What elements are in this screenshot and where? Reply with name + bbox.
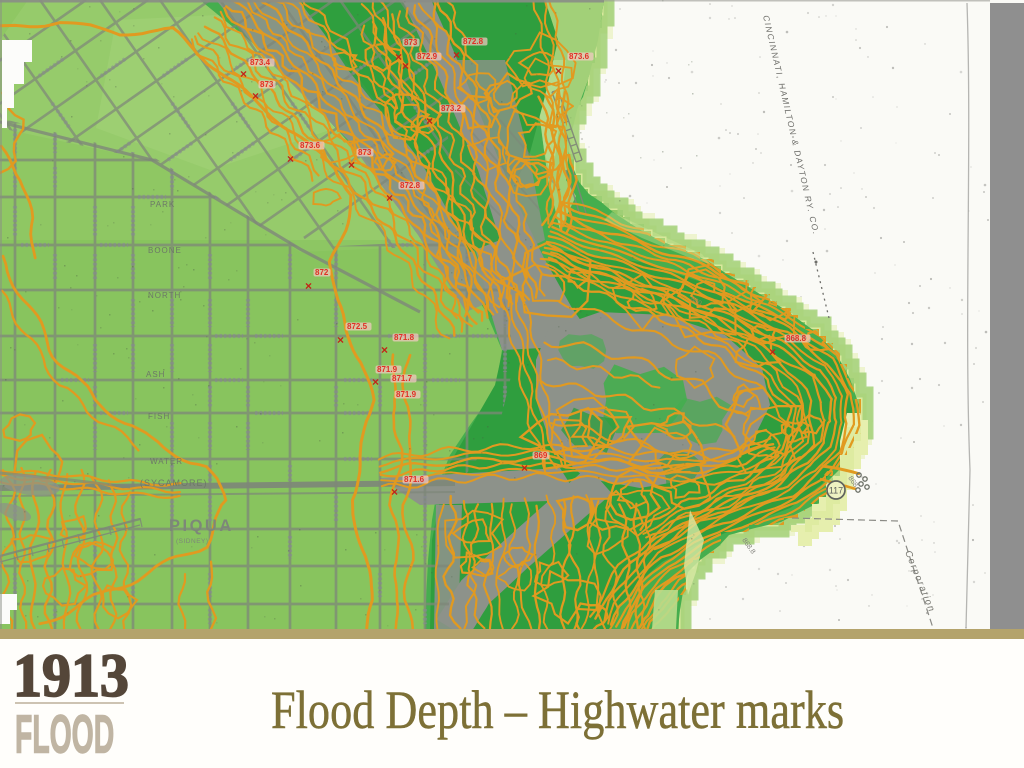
- svg-text:872.5: 872.5: [347, 322, 368, 331]
- svg-text:872: 872: [315, 268, 329, 277]
- svg-text:×: ×: [240, 67, 247, 81]
- svg-text:873.6: 873.6: [300, 141, 321, 150]
- svg-text:(SYCAMORE): (SYCAMORE): [140, 478, 208, 488]
- svg-text:871.8: 871.8: [394, 333, 415, 342]
- svg-text:×: ×: [337, 333, 344, 347]
- svg-text:871.9: 871.9: [377, 365, 398, 374]
- svg-text:WATER: WATER: [150, 457, 183, 466]
- svg-text:×: ×: [386, 191, 393, 205]
- svg-text:873.2: 873.2: [441, 104, 462, 113]
- svg-text:873.4: 873.4: [250, 58, 271, 67]
- svg-text:873: 873: [260, 80, 274, 89]
- svg-text:×: ×: [381, 343, 388, 357]
- svg-text:PARK: PARK: [150, 200, 175, 209]
- svg-text:873: 873: [404, 38, 418, 47]
- svg-text:ASH: ASH: [146, 370, 165, 379]
- svg-text:×: ×: [372, 375, 379, 389]
- svg-text:872.8: 872.8: [463, 37, 484, 46]
- svg-text:873: 873: [358, 148, 372, 157]
- svg-text:×: ×: [391, 485, 398, 499]
- svg-text:×: ×: [305, 279, 312, 293]
- svg-text:117: 117: [829, 486, 843, 496]
- svg-text:NORTH: NORTH: [148, 291, 181, 300]
- svg-text:872.9: 872.9: [417, 52, 438, 61]
- svg-text:871.9: 871.9: [396, 390, 417, 399]
- svg-text:BOONE: BOONE: [148, 246, 182, 255]
- svg-text:×: ×: [453, 48, 460, 62]
- svg-text:×: ×: [402, 59, 409, 73]
- svg-text:×: ×: [769, 345, 776, 359]
- svg-text:(SIDNEY): (SIDNEY): [176, 538, 209, 545]
- svg-text:871.6: 871.6: [404, 475, 425, 484]
- svg-text:PIQUA: PIQUA: [169, 517, 234, 535]
- svg-text:×: ×: [287, 152, 294, 166]
- svg-text:872.8: 872.8: [400, 181, 421, 190]
- svg-text:871.7: 871.7: [392, 374, 413, 383]
- svg-text:×: ×: [252, 89, 259, 103]
- svg-text:873.6: 873.6: [569, 52, 590, 61]
- svg-text:×: ×: [555, 64, 562, 78]
- svg-text:869: 869: [534, 451, 548, 460]
- svg-text:×: ×: [426, 114, 433, 128]
- svg-text:FISH: FISH: [148, 412, 170, 421]
- svg-text:×: ×: [395, 50, 402, 64]
- svg-text:868.8: 868.8: [786, 334, 807, 343]
- svg-text:×: ×: [348, 158, 355, 172]
